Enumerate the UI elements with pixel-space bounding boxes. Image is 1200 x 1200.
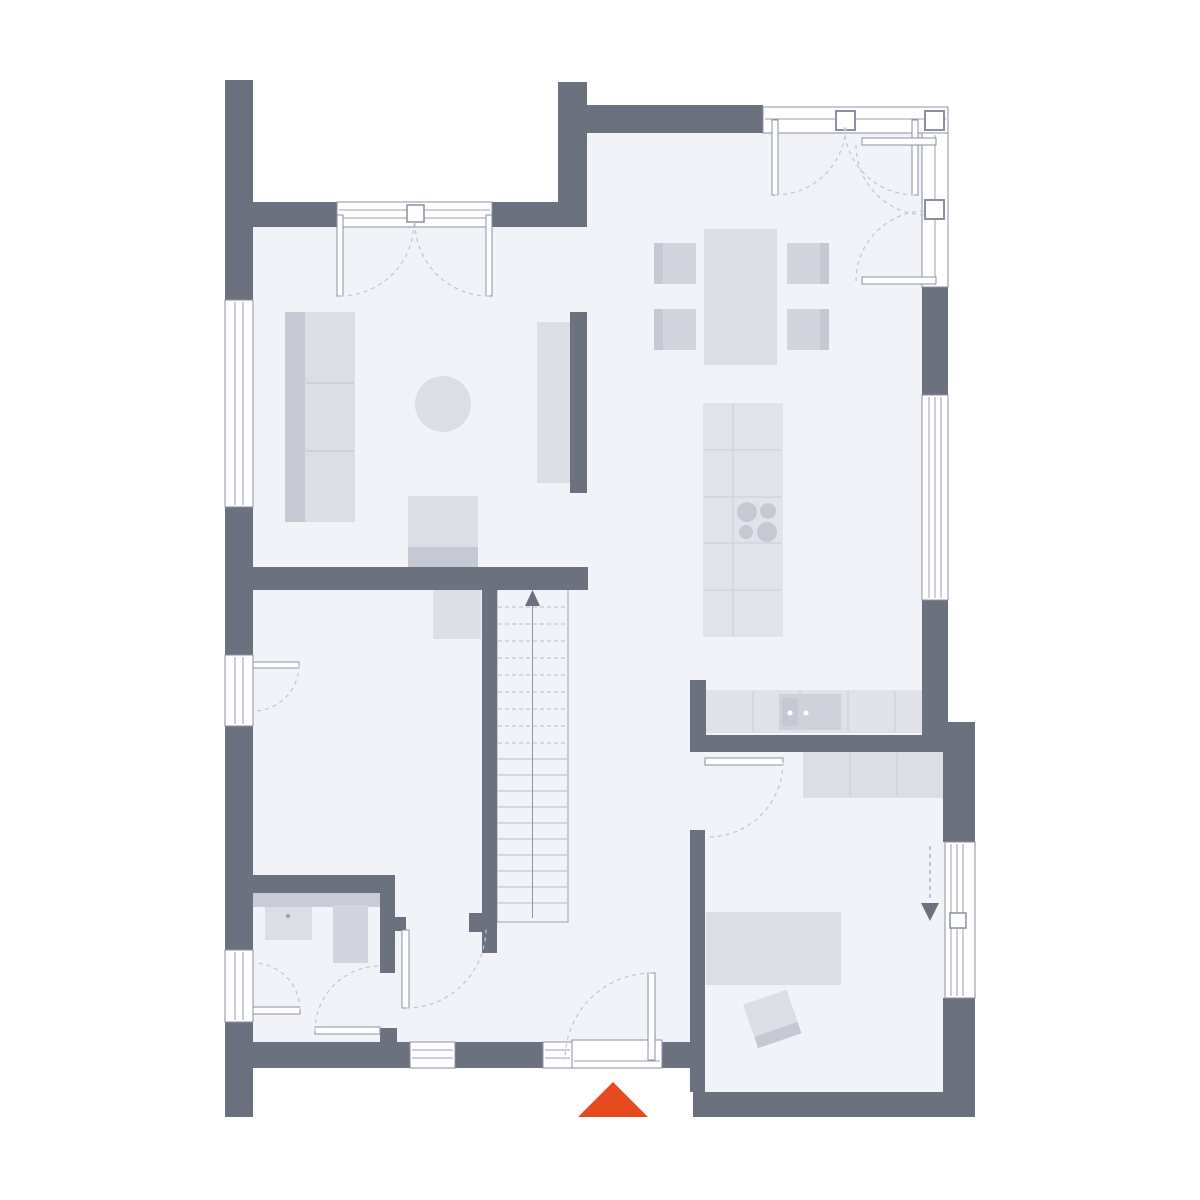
wall-left-north [225, 80, 253, 300]
utility-countertop [253, 893, 380, 907]
window-left-utility [225, 950, 253, 1022]
dining-chair-backrest [820, 309, 829, 350]
wall-room-left [690, 830, 705, 1092]
entrance-marker-triangle [578, 1082, 648, 1117]
wall-top-pier [558, 82, 587, 227]
washing-machine [265, 907, 312, 940]
glazing-door-panel [912, 120, 918, 195]
dining-chair-backrest [654, 309, 663, 350]
wall-left-lower [225, 726, 253, 950]
room-door-leaf [705, 758, 783, 765]
wall-right-upper [922, 287, 948, 395]
glazing-post [925, 200, 944, 219]
floor-plan [0, 0, 1200, 1200]
cooktop-burner [757, 522, 777, 542]
utility-cabinet [333, 905, 368, 963]
window-bottom-hall [410, 1042, 455, 1068]
window-left-hall [225, 655, 253, 726]
hall-door-leaf [402, 930, 409, 1008]
wall-top-living-left [253, 202, 337, 227]
washer-dot [286, 914, 290, 918]
wardrobe [803, 752, 945, 798]
wall-bottom-west [253, 1042, 410, 1068]
glazing-door-panel [862, 138, 936, 145]
window-bottom-entry-side [543, 1042, 572, 1068]
faucet-dot [788, 711, 793, 716]
wall-left-south [225, 1022, 253, 1117]
utility-door-leaf [315, 1027, 380, 1034]
floor-plan-page [0, 0, 1200, 1200]
glazing-post [836, 111, 855, 130]
glazing-post [925, 111, 944, 130]
hall-cabinet [433, 590, 481, 639]
wall-utility-right [380, 893, 395, 973]
window-casement-hall [253, 662, 299, 668]
sideboard [537, 322, 570, 483]
coffee-table [415, 376, 471, 432]
dining-chair-backrest [820, 243, 829, 284]
cooktop-burner [737, 502, 757, 522]
wall-left-mid [225, 507, 253, 655]
tv-partition-wall [570, 312, 587, 493]
wall-hall-divider [253, 567, 588, 590]
faucet-dot [804, 711, 809, 716]
desk [706, 912, 841, 985]
wall-stairs [482, 585, 497, 953]
glazing-door-panel [772, 120, 778, 195]
cooktop-burner [739, 525, 753, 539]
wall-right-room-upper [943, 722, 975, 842]
wall-top-dining [587, 105, 763, 133]
door-handle [950, 913, 966, 928]
french-door-panel [486, 215, 492, 296]
wall-stairs-stub [469, 913, 482, 932]
wall-bottom-mid [455, 1042, 543, 1068]
dining-chair-backrest [654, 243, 663, 284]
wall-kitchen-stub [690, 680, 706, 752]
sofa-seat [305, 312, 355, 522]
wall-room-bottom [693, 1092, 975, 1117]
armchair-seat [408, 496, 478, 547]
wall-top-living-right [492, 202, 558, 227]
window-left-living [225, 300, 253, 507]
wall-bottom-east [662, 1042, 693, 1068]
window-casement-utility [253, 1007, 300, 1014]
wall-utility-stub [380, 1028, 397, 1042]
sofa-backrest [285, 312, 305, 522]
french-door-post [407, 205, 424, 222]
armchair-backrest [408, 547, 478, 567]
wall-utility-top [253, 875, 395, 893]
cooktop-burner [760, 503, 776, 519]
wall-kitchen-south [706, 735, 947, 752]
dining-table [704, 229, 777, 365]
entrance-door-leaf [648, 973, 655, 1060]
glazing-door-panel [862, 277, 936, 284]
french-door-panel [337, 215, 343, 296]
